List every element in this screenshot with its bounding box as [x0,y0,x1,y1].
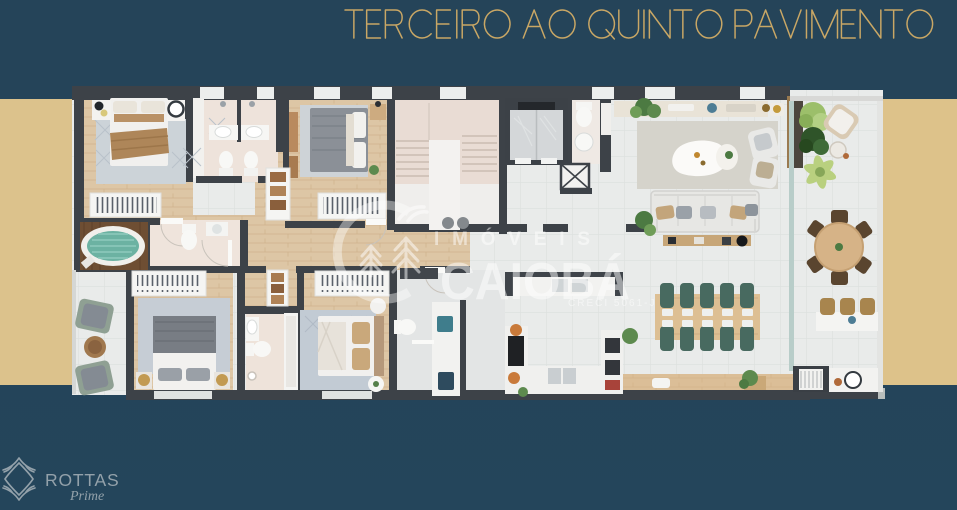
svg-text:CRECI 5061-J: CRECI 5061-J [568,298,656,309]
svg-text:ROTTAS: ROTTAS [45,470,119,490]
svg-text:Prime: Prime [69,489,104,504]
